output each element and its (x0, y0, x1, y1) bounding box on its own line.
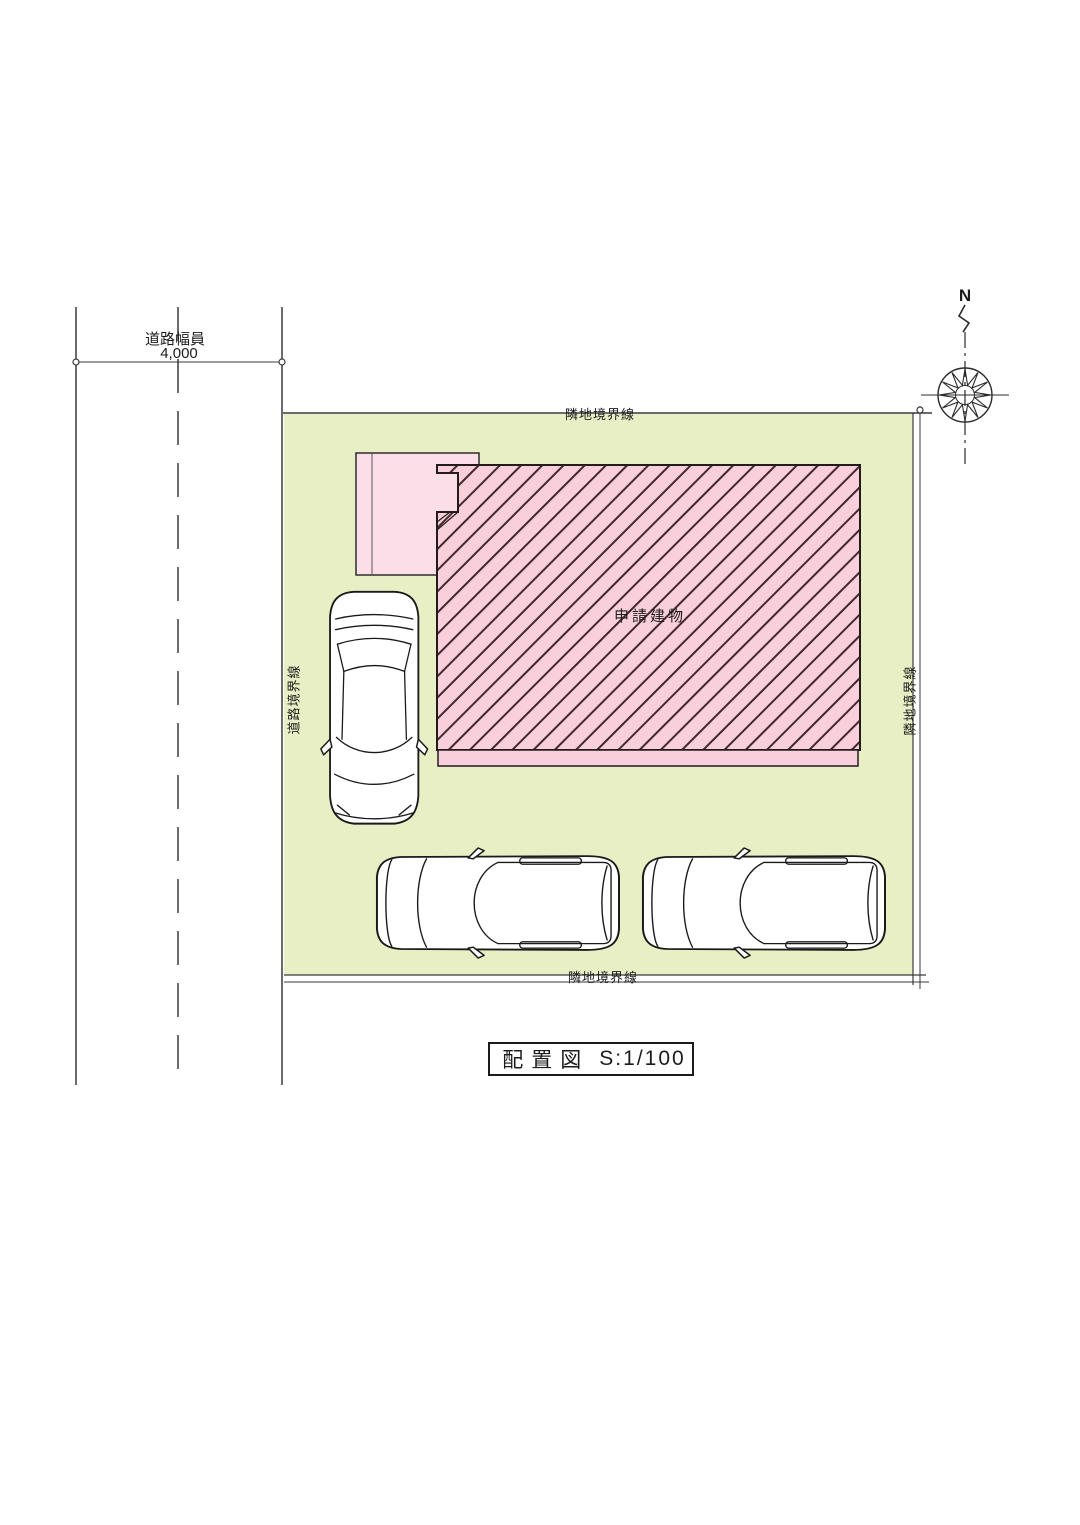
title-block: 配置図 S:1/100 (488, 1042, 694, 1076)
site-plan-drawing (0, 0, 1080, 1525)
boundary-corner-marker (917, 407, 923, 413)
boundary-label-left: 道路境界線 (284, 655, 303, 745)
boundary-label-top: 隣地境界線 (540, 404, 660, 423)
car-top-view-vertical (321, 592, 428, 824)
road (76, 307, 282, 1085)
dimension-end-marker (279, 359, 285, 365)
building-label: 申請建物 (590, 605, 710, 626)
site-plan-sheet: 道路幅員 4,000 隣地境界線 隣地境界線 道路境界線 隣地境界線 申請建物 … (0, 0, 1080, 1525)
drawing-title: 配置図 (502, 1044, 589, 1074)
north-compass (921, 305, 1009, 468)
building-base-strip (438, 750, 858, 766)
boundary-label-right: 隣地境界線 (900, 656, 919, 746)
boundary-label-bottom: 隣地境界線 (543, 967, 663, 986)
car-top-view-horizontal-2 (643, 848, 885, 958)
road-width-value: 4,000 (149, 345, 209, 362)
north-label: N (950, 286, 980, 306)
car-top-view-horizontal-1 (377, 848, 619, 958)
north-arrow-zigzag (959, 305, 969, 332)
dimension-end-marker (73, 359, 79, 365)
drawing-scale: S:1/100 (599, 1047, 685, 1071)
